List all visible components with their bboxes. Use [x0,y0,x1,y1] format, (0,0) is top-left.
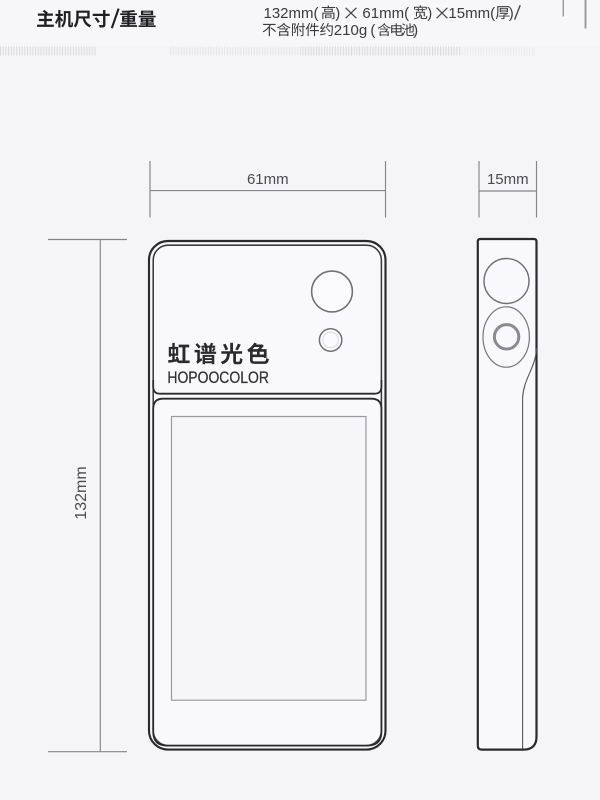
svg-text:HOPOOCOLOR: HOPOOCOLOR [167,368,269,387]
svg-text:15mm: 15mm [487,171,529,188]
svg-text:61mm(: 61mm( [362,5,409,22]
svg-text:15mm(: 15mm( [448,5,495,22]
svg-text:210g: 210g [334,22,367,39]
svg-text:132mm(: 132mm( [264,5,319,22]
svg-text:): ) [509,5,514,22]
svg-text:): ) [335,5,340,22]
svg-text:(: ( [370,22,375,39]
svg-text:61mm: 61mm [247,171,289,188]
svg-text:): ) [427,5,432,22]
svg-text:132mm: 132mm [73,466,90,519]
svg-text:): ) [413,22,418,39]
